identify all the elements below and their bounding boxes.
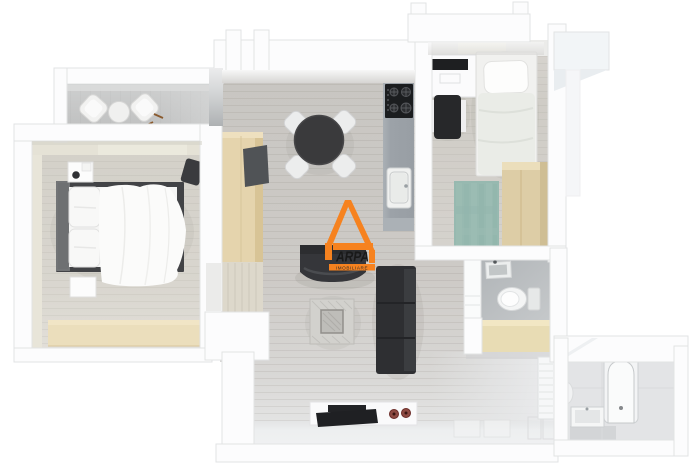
- svg-text:IMOBILIARE: IMOBILIARE: [336, 266, 368, 271]
- svg-text:ARPA: ARPA: [335, 250, 369, 266]
